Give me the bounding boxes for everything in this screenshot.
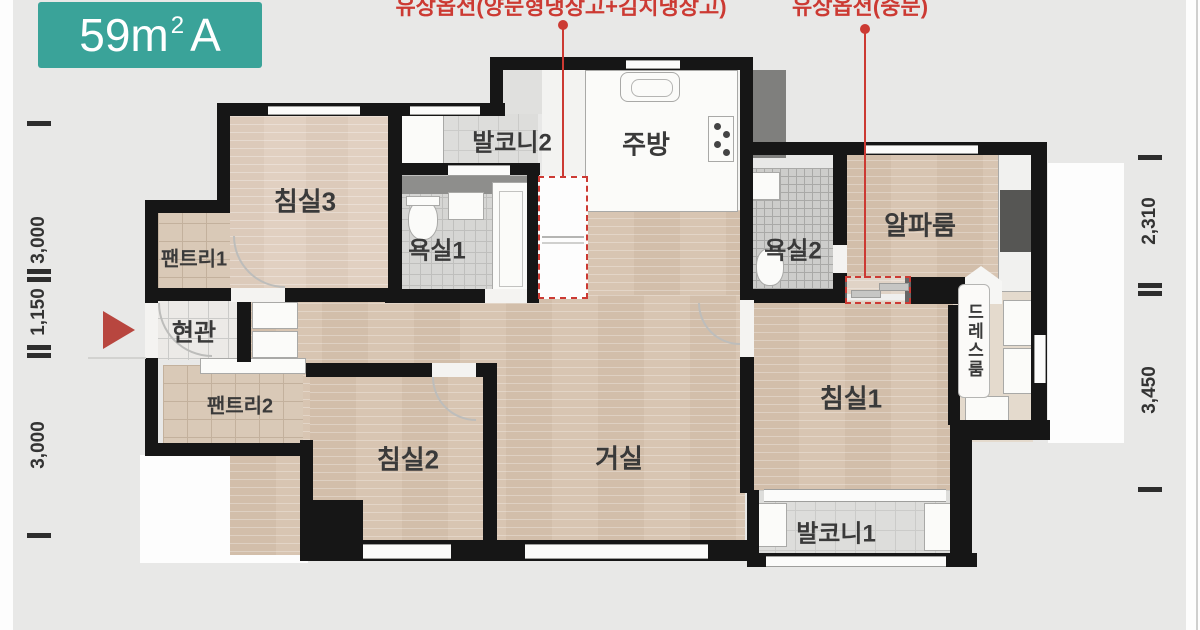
kitchen-sink-icon	[620, 72, 680, 102]
right-margin-rule	[1196, 0, 1198, 630]
wall-corner-bottom-left	[306, 500, 363, 542]
wall-left-outer-upper	[145, 200, 158, 303]
dim-left-middle: 1,150	[28, 288, 50, 336]
middle-door-leader-line	[864, 26, 866, 278]
wall-bedroom2-top-a	[306, 363, 432, 377]
fridge-option-zone	[538, 176, 588, 299]
dim-tick	[1138, 487, 1162, 492]
entrance-guide-line	[88, 357, 146, 359]
bathroom2-door-opening	[833, 245, 847, 273]
dim-tick	[27, 277, 51, 282]
sink1-icon	[448, 192, 484, 220]
wall-entrance-right	[237, 298, 251, 362]
bathtub-icon	[492, 182, 530, 296]
shoe-cabinet-bottom	[252, 331, 298, 358]
wall-top-middle	[490, 57, 742, 70]
dim-tick	[27, 269, 51, 274]
wall-living-bedroom1	[740, 357, 754, 493]
stove-icon	[708, 116, 734, 162]
bathroom2-label: 욕실2	[764, 231, 822, 266]
bedroom1-door-opening	[740, 300, 754, 357]
wall-bedroom3-bottom	[285, 288, 395, 302]
dim-tick	[1138, 283, 1162, 288]
badge-superscript: 2	[171, 14, 184, 38]
middle-door-annotation: 유상옵션(중문)	[792, 0, 928, 21]
bathroom1-door-opening	[485, 289, 527, 303]
dim-tick	[27, 353, 51, 358]
balcony1-box-left	[757, 503, 787, 547]
dim-right-top: 2,310	[1139, 197, 1161, 245]
bedroom3-door-opening	[231, 288, 285, 302]
window-bedroom2-bottom	[363, 544, 451, 559]
wall-pantry2-bottom	[145, 443, 313, 456]
balcony2-door	[448, 165, 510, 176]
window-balcony1-top	[764, 489, 946, 502]
kitchen-label: 주방	[622, 125, 670, 162]
bathroom1-label: 욕실1	[408, 231, 466, 266]
wall-alpha-left	[833, 142, 847, 197]
wall-bedroom3-bathroom1	[388, 114, 402, 303]
window-right-wall	[1034, 335, 1046, 383]
wall-bedroom3-left	[217, 103, 230, 213]
dim-tick	[27, 533, 51, 538]
living-room-label: 거실	[595, 439, 643, 476]
sink2-icon	[752, 172, 780, 200]
toilet1-tank	[406, 196, 440, 206]
balcony1-label: 발코니1	[796, 514, 876, 549]
dress-room-label: 드레스룸	[962, 303, 987, 379]
dim-tick	[27, 121, 51, 126]
window-alpha-room	[866, 145, 978, 154]
dim-tick	[1138, 155, 1162, 160]
badge-size-text: 59m	[79, 8, 168, 62]
dim-left-top: 3,000	[28, 216, 50, 264]
balcony2-label: 발코니2	[472, 123, 552, 158]
pantry2-counter	[200, 358, 306, 374]
outside-area-right	[1048, 163, 1124, 443]
alpha-room-label: 알파룸	[884, 206, 956, 243]
dim-tick	[27, 345, 51, 350]
middle-door-option-zone	[845, 276, 911, 304]
left-margin	[0, 0, 13, 630]
pantry1-label: 팬트리1	[161, 243, 227, 272]
wall-entrance-top	[145, 288, 245, 301]
wall-kitchen-bathroom2-left	[740, 57, 753, 303]
entrance-door-opening	[145, 303, 158, 358]
wall-top-jog	[490, 57, 503, 116]
bedroom3-label: 침실3	[274, 182, 336, 219]
balcony2-appliance	[400, 112, 444, 168]
wall-bathroom2-bottom	[748, 289, 840, 303]
wall-left-bottom-step	[300, 440, 313, 552]
fridge-option-leader-line	[562, 22, 564, 178]
wall-balcony1-right	[950, 440, 972, 565]
middle-door-leader-dot	[860, 24, 870, 34]
dim-left-bottom: 3,000	[28, 421, 50, 469]
wall-right-outer	[1031, 142, 1047, 440]
wall-balcony1-left	[747, 490, 759, 567]
window-living-bottom	[525, 544, 708, 559]
window-balcony2	[410, 106, 480, 115]
wall-bedroom2-living	[483, 363, 497, 553]
shoe-cabinet-top	[252, 302, 298, 329]
unit-type-badge: 59m2A	[38, 2, 262, 68]
window-bedroom3	[268, 106, 360, 115]
fridge-option-annotation: 유상옵션(양문형냉장고+김치냉장고)	[395, 0, 726, 21]
bedroom2-label: 침실2	[377, 440, 439, 477]
bedroom2-door-opening	[432, 363, 476, 377]
fridge-option-leader-dot	[558, 20, 568, 30]
entrance-arrow-icon	[103, 311, 135, 349]
alpha-wardrobe-dark	[1000, 190, 1032, 252]
window-balcony1-bottom	[766, 556, 946, 567]
window-kitchen	[626, 60, 680, 69]
entrance-label: 현관	[172, 313, 216, 348]
pantry2-label: 팬트리2	[207, 390, 273, 419]
floorplan-canvas: 유상옵션(양문형냉장고+김치냉장고) 유상옵션(중문) 침실3 발코니2 주방 …	[0, 0, 1200, 630]
dim-tick	[1138, 291, 1162, 296]
wall-left-outer-lower	[145, 358, 158, 456]
washer-icon	[924, 503, 952, 551]
badge-type-text: A	[190, 8, 221, 62]
bedroom1-label: 침실1	[820, 379, 882, 416]
dim-right-bottom: 3,450	[1139, 366, 1161, 414]
wall-hall-gate	[905, 277, 965, 304]
